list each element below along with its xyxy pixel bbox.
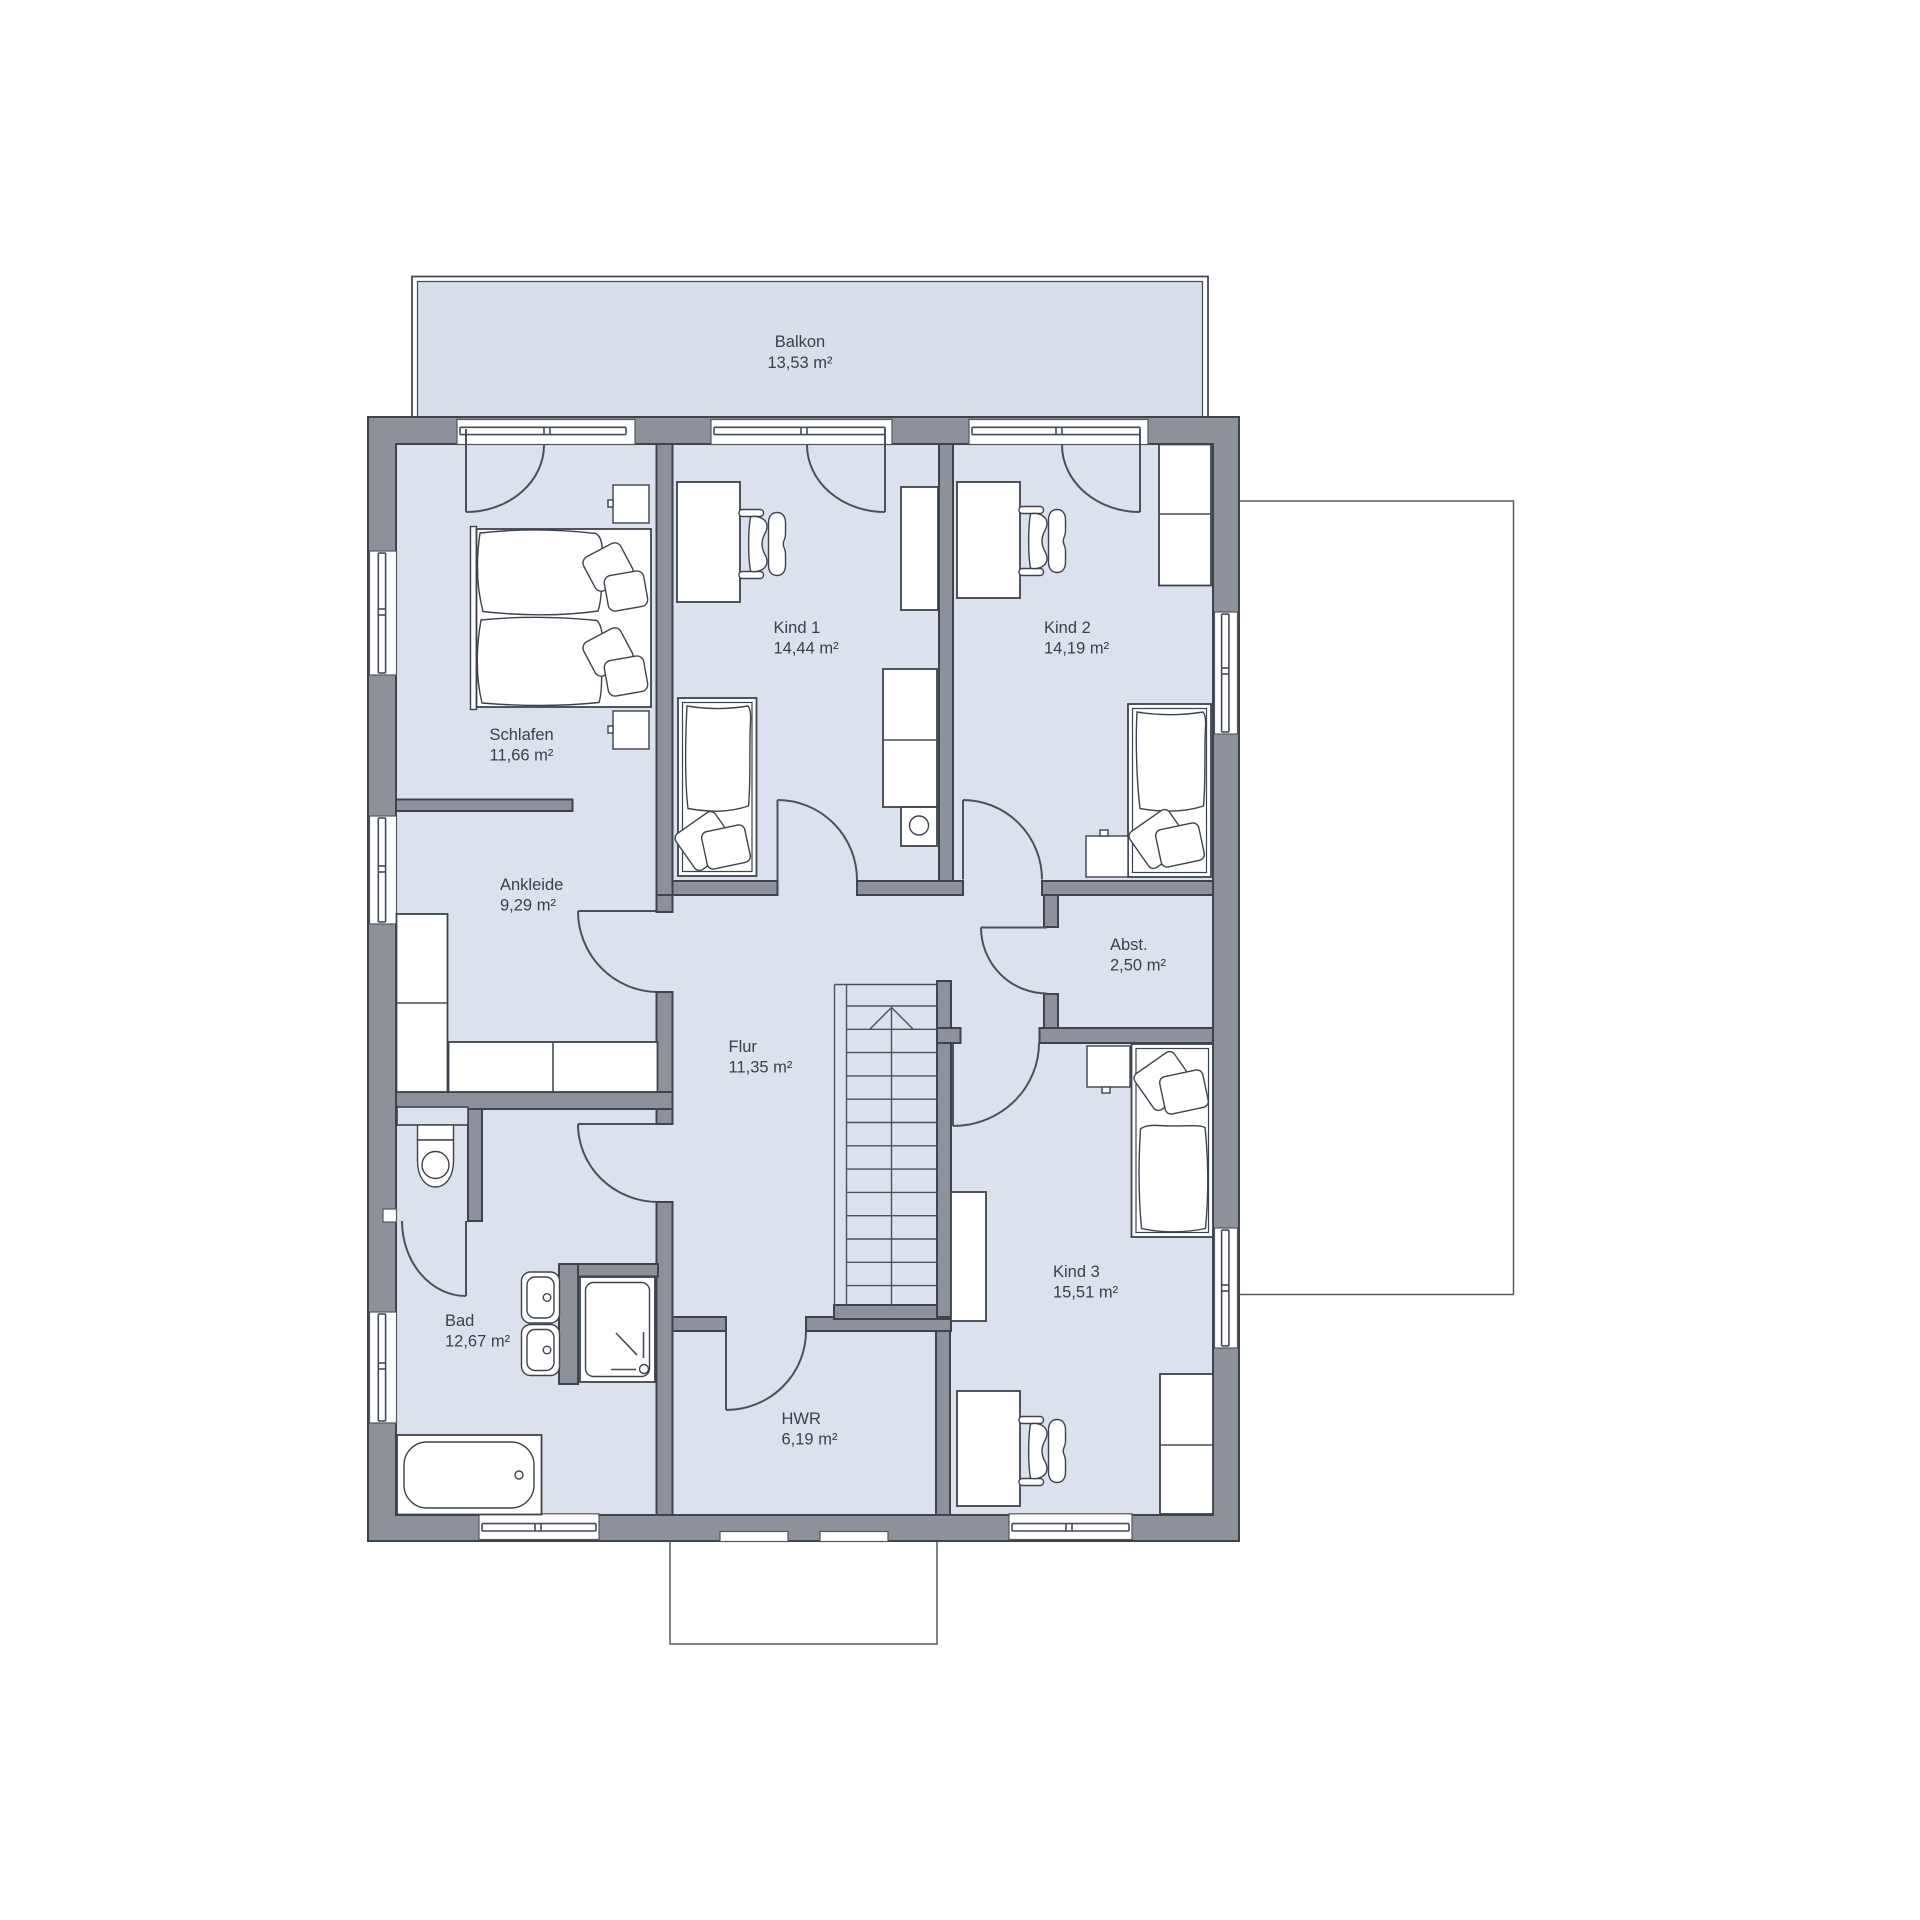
svg-text:Bad: Bad [445, 1312, 474, 1330]
svg-text:13,53 m²: 13,53 m² [767, 354, 833, 372]
svg-text:11,66 m²: 11,66 m² [490, 747, 554, 765]
svg-text:Ankleide: Ankleide [500, 876, 563, 894]
svg-text:HWR: HWR [782, 1410, 821, 1428]
svg-text:Balkon: Balkon [775, 333, 825, 351]
svg-text:15,51 m²: 15,51 m² [1053, 1284, 1119, 1302]
svg-text:Kind 2: Kind 2 [1044, 619, 1091, 637]
svg-text:9,29 m²: 9,29 m² [500, 897, 556, 915]
svg-text:Kind 1: Kind 1 [774, 619, 821, 637]
svg-text:Schlafen: Schlafen [490, 726, 554, 744]
svg-text:2,50 m²: 2,50 m² [1110, 957, 1166, 975]
svg-text:Kind 3: Kind 3 [1053, 1263, 1100, 1281]
svg-text:11,35 m²: 11,35 m² [729, 1059, 793, 1077]
svg-text:Flur: Flur [729, 1038, 758, 1056]
svg-text:14,19 m²: 14,19 m² [1044, 640, 1110, 658]
svg-text:Abst.: Abst. [1110, 936, 1148, 954]
svg-text:12,67 m²: 12,67 m² [445, 1333, 511, 1351]
svg-text:14,44 m²: 14,44 m² [774, 640, 840, 658]
svg-text:6,19 m²: 6,19 m² [782, 1431, 838, 1449]
